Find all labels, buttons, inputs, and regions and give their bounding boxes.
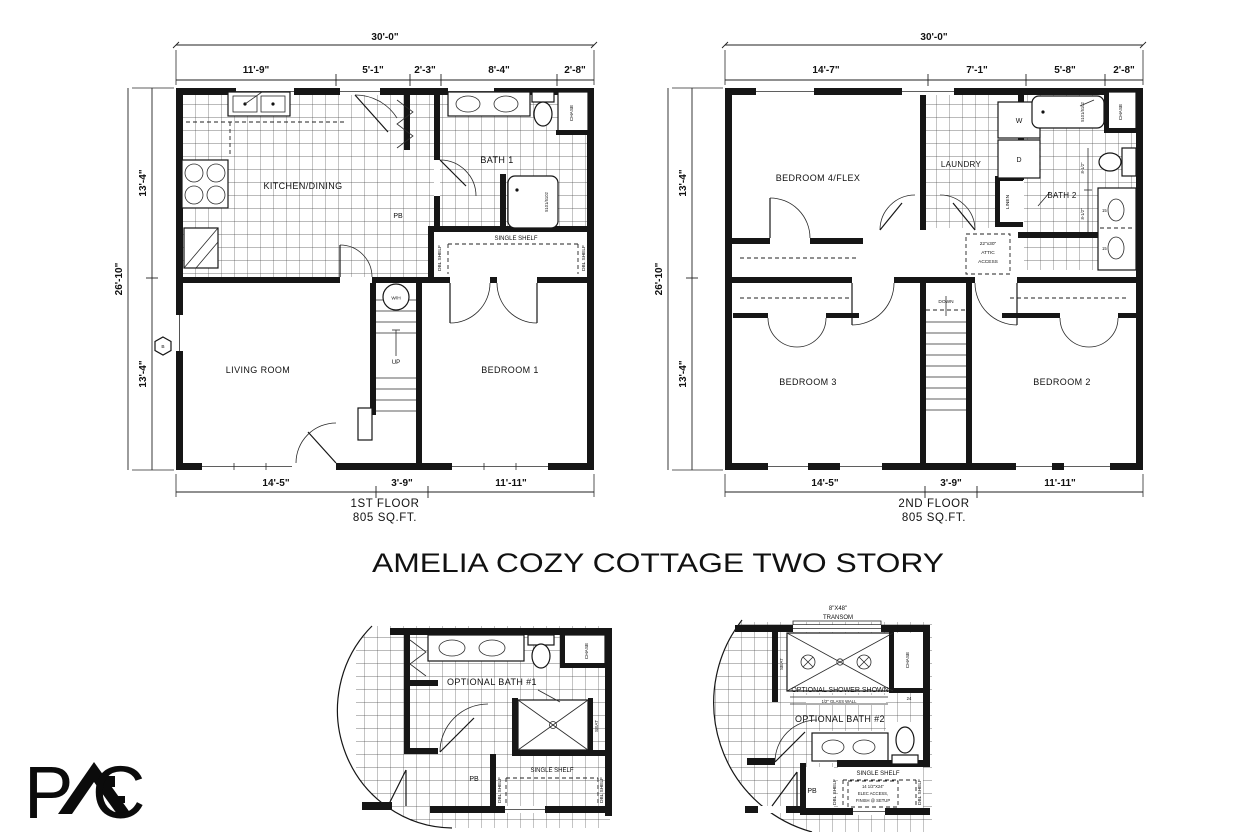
bath2-pb-label: PB xyxy=(807,788,817,795)
bath1-dbl-shelf-left: DBL SHELF xyxy=(497,777,503,803)
plan1-caption-line2: 805 SQ.FT. xyxy=(353,512,417,524)
plan1-dim-height: 26'-10" xyxy=(114,262,125,295)
bath1-pb-label: PB xyxy=(469,776,479,783)
transom-line2: TRANSOM xyxy=(823,615,853,621)
elec-line2: ELEC ACCESS, xyxy=(858,791,888,796)
plan2-dim-left-1: 13'-4" xyxy=(678,360,689,387)
plan1-first-floor: W/H UP xyxy=(114,32,597,524)
dryer-label: D xyxy=(1016,157,1021,164)
bedroom2-label: BEDROOM 2 xyxy=(1033,377,1091,387)
up-label: UP xyxy=(392,360,400,366)
living-room-label: LIVING ROOM xyxy=(226,365,290,375)
elec-line1: 14 1/2"X24" xyxy=(862,784,885,789)
kitchen-sink xyxy=(228,92,290,116)
plan1-dim-top-3: 8'-4" xyxy=(488,65,510,76)
plan1-chase: CHASE xyxy=(556,92,590,135)
pb-label: PB xyxy=(393,213,403,220)
dbl-shelf-label-left: DBL SHELF xyxy=(437,245,443,271)
bath1-single-shelf: SINGLE SHELF xyxy=(530,768,573,774)
bath2-chase-dim: 24 xyxy=(907,696,912,701)
plan2-stairs: DOWN xyxy=(926,296,966,410)
bath1-toilet xyxy=(532,92,554,126)
plan1-dim-bottom-2: 11'-11" xyxy=(495,478,527,489)
plan2-dim-width: 30'-0" xyxy=(920,32,947,43)
plan1-dim-width: 30'-0" xyxy=(371,32,398,43)
plan2-dim-bottom-1: 3'-9" xyxy=(940,478,962,489)
bath2-vanity: 15 15 xyxy=(1098,188,1136,270)
single-shelf-label: SINGLE SHELF xyxy=(494,236,537,242)
plan1-dim-bottom-1: 3'-9" xyxy=(391,478,413,489)
plan2-dim-top-3: 2'-8" xyxy=(1113,65,1135,76)
washer-label: W xyxy=(1016,118,1023,125)
glass-wall-label: 1/2" GLASS WALL xyxy=(822,699,858,704)
plan1-dim-top-1: 5'-1" xyxy=(362,65,384,76)
attic-access: 22"x30" ATTIC ACCESS xyxy=(966,234,1010,274)
shower-note-label: OPTIONAL SHOWER SHOWN xyxy=(791,687,888,694)
floorplan-drawing: W/H UP xyxy=(0,0,1248,832)
attic-line3: ACCESS xyxy=(978,259,998,265)
optional-bath1-detail: CHASE SEAT OPTIONAL BATH #1 SINGLE SHELF… xyxy=(337,626,612,830)
bath1-vanity-detail xyxy=(428,635,524,661)
bath1-shower: SEAT xyxy=(518,700,600,750)
plan2-dim-bottom-2: 11'-11" xyxy=(1044,478,1076,489)
optional-bath2-detail: 8"X48" TRANSOM xyxy=(688,606,932,832)
water-heater-label: W/H xyxy=(391,296,401,302)
logo-letter-c: C xyxy=(92,751,145,832)
transom-line1: 8"X48" xyxy=(829,606,847,612)
plan2-caption-line2: 805 SQ.FT. xyxy=(902,512,966,524)
plan1-stair-closet xyxy=(358,408,372,440)
bath2-name-label: OPTIONAL BATH #2 xyxy=(795,714,885,724)
plan2-dim-top-0: 14'-7" xyxy=(812,65,839,76)
bedroom3-label: BEDROOM 3 xyxy=(779,377,837,387)
stove-symbol xyxy=(182,160,228,208)
plan1-stairs: W/H UP xyxy=(358,284,416,440)
dbl-shelf-label-right: DBL SHELF xyxy=(581,245,587,271)
bath2-seat-label: SEAT xyxy=(779,658,785,670)
laundry-label: LAUNDRY xyxy=(941,160,982,169)
bath2-small-dim-2: 8-1/2" xyxy=(1080,208,1085,220)
linen-label: LINEN xyxy=(1005,194,1011,209)
bedroom4-label: BEDROOM 4/FLEX xyxy=(776,173,861,183)
plan1-dim-top-0: 11'-9" xyxy=(243,65,270,76)
plan-title: AMELIA COZY COTTAGE TWO STORY xyxy=(372,548,944,578)
bath2-small-dim-1: 8-1/2" xyxy=(1080,162,1085,174)
plan1-dim-left-1: 13'-4" xyxy=(138,360,149,387)
b-marker-label: B xyxy=(161,344,164,350)
floorplan-sheet: W/H UP xyxy=(0,0,1248,832)
plan1-dim-left-0: 13'-4" xyxy=(138,169,149,196)
bath1-chase-label: CHASE xyxy=(584,643,590,660)
plan2-dim-left-0: 13'-4" xyxy=(678,169,689,196)
bath1-seat-label: SEAT xyxy=(594,720,600,732)
bath1-dbl-shelf-right: DBL SHELF xyxy=(599,777,605,803)
bath1-tub: 5101/5102 xyxy=(508,176,558,228)
chase-label: CHASE xyxy=(569,105,575,122)
bath2-tub: 5101/5102 xyxy=(1032,96,1104,128)
bath2-single-shelf: SINGLE SHELF xyxy=(856,771,899,777)
plan1-dim-bottom-0: 14'-5" xyxy=(262,478,289,489)
plan1-caption-line1: 1ST FLOOR xyxy=(350,498,419,510)
sink-size-label-1: 15 xyxy=(1102,208,1107,213)
sink-size-label-2: 15 xyxy=(1102,246,1107,251)
bath1-vanity xyxy=(448,92,530,116)
bath1-name-label: OPTIONAL BATH #1 xyxy=(447,677,537,687)
plan1-dim-top-4: 2'-8" xyxy=(564,65,586,76)
plan2-dim-top-2: 5'-8" xyxy=(1054,65,1076,76)
attic-line2: ATTIC xyxy=(981,250,995,256)
plan1-dim-top-2: 2'-3" xyxy=(414,65,436,76)
refrigerator-symbol xyxy=(184,228,218,268)
bath1-chase-detail: CHASE xyxy=(560,635,607,668)
plan2-second-floor: W D LINEN 5101/5102 CHASE 15 15 xyxy=(654,32,1146,524)
plan2-chase: CHASE xyxy=(1104,92,1138,133)
bath2-dbl-shelf-left: DBL SHELF xyxy=(832,779,838,805)
tub-model-label: 5101/5102 xyxy=(544,191,549,211)
plan2-dim-bottom-0: 14'-5" xyxy=(811,478,838,489)
bedroom1-label: BEDROOM 1 xyxy=(481,365,539,375)
b-marker: B xyxy=(155,337,171,355)
plan2-dim-top-1: 7'-1" xyxy=(966,65,988,76)
bath1-label: BATH 1 xyxy=(480,155,513,165)
elec-line3: FINISH @ SETUP xyxy=(856,798,890,803)
plan2-chase-label: CHASE xyxy=(1118,104,1124,121)
bath2-label: BATH 2 xyxy=(1047,191,1076,200)
logo-letter-p: P xyxy=(24,751,73,832)
kitchen-label: KITCHEN/DINING xyxy=(263,181,342,191)
plan2-caption-line1: 2ND FLOOR xyxy=(898,498,969,510)
plan2-dim-height: 26'-10" xyxy=(654,262,665,295)
attic-line1: 22"x30" xyxy=(980,241,997,247)
bath2-chase-label: CHASE xyxy=(905,652,911,669)
company-logo: P C xyxy=(24,751,145,832)
bath2-dbl-shelf-right: DBL SHELF xyxy=(917,779,923,805)
